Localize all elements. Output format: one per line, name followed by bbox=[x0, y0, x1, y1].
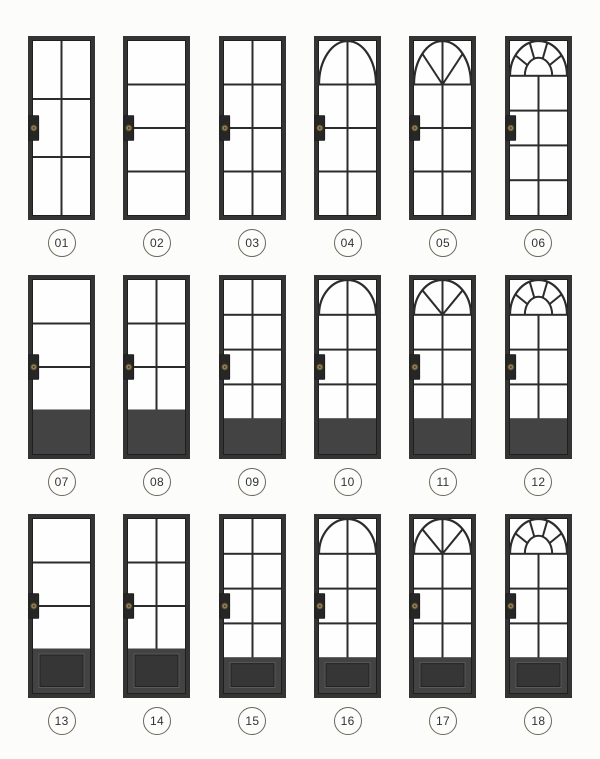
door-card-12: 12 bbox=[491, 275, 586, 496]
raised-panel bbox=[135, 655, 178, 687]
door-card-11: 11 bbox=[395, 275, 490, 496]
door-illustration-02 bbox=[123, 36, 190, 220]
door-illustration-17 bbox=[409, 514, 476, 698]
door-number-label: 15 bbox=[245, 714, 259, 728]
door-card-10: 10 bbox=[300, 275, 395, 496]
raised-panel bbox=[40, 655, 83, 687]
door-knob-center bbox=[128, 605, 130, 607]
vertical-muntin bbox=[442, 519, 444, 658]
door-card-06: 06 bbox=[491, 36, 586, 257]
kick-panel bbox=[319, 418, 376, 454]
raised-panel bbox=[326, 664, 369, 687]
door-number-label: 07 bbox=[55, 475, 69, 489]
door-illustration-14 bbox=[123, 514, 190, 698]
horizontal-muntin bbox=[128, 127, 185, 129]
door-illustration-15 bbox=[219, 514, 286, 698]
vertical-muntin bbox=[537, 315, 539, 419]
door-number-badge: 07 bbox=[48, 468, 76, 496]
door-knob-center bbox=[319, 127, 321, 129]
door-knob-center bbox=[510, 127, 512, 129]
kick-panel bbox=[510, 418, 567, 454]
door-illustration-18 bbox=[505, 514, 572, 698]
door-number-label: 16 bbox=[341, 714, 355, 728]
door-number-label: 03 bbox=[245, 236, 259, 250]
door-number-label: 14 bbox=[150, 714, 164, 728]
door-knob-center bbox=[224, 127, 226, 129]
door-number-badge: 16 bbox=[334, 707, 362, 735]
door-knob-center bbox=[128, 127, 130, 129]
raised-panel bbox=[421, 664, 464, 687]
door-card-01: 01 bbox=[14, 36, 109, 257]
vertical-muntin bbox=[251, 519, 253, 658]
door-illustration-05 bbox=[409, 36, 476, 220]
door-illustration-09 bbox=[219, 275, 286, 459]
door-number-badge: 03 bbox=[238, 229, 266, 257]
horizontal-muntin bbox=[128, 171, 185, 173]
door-illustration-08 bbox=[123, 275, 190, 459]
door-illustration-03 bbox=[219, 36, 286, 220]
horizontal-muntin bbox=[33, 605, 90, 607]
vertical-muntin bbox=[347, 519, 349, 658]
door-number-badge: 10 bbox=[334, 468, 362, 496]
kick-panel bbox=[224, 418, 281, 454]
door-illustration-04 bbox=[314, 36, 381, 220]
door-number-badge: 14 bbox=[143, 707, 171, 735]
door-card-14: 14 bbox=[109, 514, 204, 735]
vertical-muntin bbox=[156, 280, 158, 411]
door-number-badge: 06 bbox=[524, 229, 552, 257]
door-illustration-01 bbox=[28, 36, 95, 220]
door-card-02: 02 bbox=[109, 36, 204, 257]
door-illustration-06 bbox=[505, 36, 572, 220]
door-number-badge: 17 bbox=[429, 707, 457, 735]
door-number-label: 08 bbox=[150, 475, 164, 489]
kick-panel bbox=[414, 418, 471, 454]
horizontal-muntin bbox=[33, 366, 90, 368]
door-number-label: 01 bbox=[55, 236, 69, 250]
vertical-muntin bbox=[537, 554, 539, 658]
door-number-label: 09 bbox=[245, 475, 259, 489]
vertical-muntin bbox=[537, 76, 539, 215]
vertical-muntin bbox=[61, 41, 63, 215]
door-number-badge: 09 bbox=[238, 468, 266, 496]
door-knob-center bbox=[224, 605, 226, 607]
door-number-label: 11 bbox=[436, 475, 449, 489]
door-knob-center bbox=[319, 605, 321, 607]
vertical-muntin bbox=[156, 519, 158, 650]
door-number-label: 10 bbox=[341, 475, 355, 489]
door-number-badge: 11 bbox=[429, 468, 457, 496]
door-grid: 010203040506070809101112131415161718 bbox=[14, 36, 586, 735]
kick-panel bbox=[128, 410, 185, 455]
door-knob-center bbox=[510, 605, 512, 607]
door-number-badge: 08 bbox=[143, 468, 171, 496]
door-number-badge: 18 bbox=[524, 707, 552, 735]
door-number-badge: 12 bbox=[524, 468, 552, 496]
door-knob-center bbox=[414, 127, 416, 129]
door-number-badge: 13 bbox=[48, 707, 76, 735]
door-knob-center bbox=[128, 366, 130, 368]
door-knob-center bbox=[319, 366, 321, 368]
raised-panel bbox=[517, 664, 560, 687]
door-knob-center bbox=[33, 127, 35, 129]
vertical-muntin bbox=[442, 280, 444, 419]
door-illustration-11 bbox=[409, 275, 476, 459]
horizontal-muntin bbox=[33, 323, 90, 325]
door-card-13: 13 bbox=[14, 514, 109, 735]
kick-panel bbox=[33, 410, 90, 455]
horizontal-muntin bbox=[128, 84, 185, 86]
door-number-label: 13 bbox=[55, 714, 69, 728]
door-illustration-13 bbox=[28, 514, 95, 698]
door-knob-center bbox=[33, 605, 35, 607]
door-card-15: 15 bbox=[205, 514, 300, 735]
door-card-16: 16 bbox=[300, 514, 395, 735]
door-number-label: 04 bbox=[341, 236, 355, 250]
door-card-09: 09 bbox=[205, 275, 300, 496]
door-illustration-10 bbox=[314, 275, 381, 459]
door-number-badge: 04 bbox=[334, 229, 362, 257]
door-card-04: 04 bbox=[300, 36, 395, 257]
door-number-badge: 01 bbox=[48, 229, 76, 257]
raised-panel bbox=[231, 664, 274, 687]
door-illustration-07 bbox=[28, 275, 95, 459]
door-knob-center bbox=[414, 366, 416, 368]
door-catalog-page: 010203040506070809101112131415161718 bbox=[0, 0, 600, 759]
door-number-badge: 02 bbox=[143, 229, 171, 257]
door-card-07: 07 bbox=[14, 275, 109, 496]
vertical-muntin bbox=[251, 280, 253, 419]
door-number-label: 02 bbox=[150, 236, 164, 250]
door-card-03: 03 bbox=[205, 36, 300, 257]
door-card-08: 08 bbox=[109, 275, 204, 496]
door-illustration-16 bbox=[314, 514, 381, 698]
door-card-17: 17 bbox=[395, 514, 490, 735]
door-knob-center bbox=[510, 366, 512, 368]
door-number-badge: 05 bbox=[429, 229, 457, 257]
door-number-label: 18 bbox=[531, 714, 545, 728]
door-knob-center bbox=[33, 366, 35, 368]
door-number-label: 06 bbox=[531, 236, 545, 250]
door-card-18: 18 bbox=[491, 514, 586, 735]
vertical-muntin bbox=[347, 280, 349, 419]
door-number-badge: 15 bbox=[238, 707, 266, 735]
door-knob-center bbox=[224, 366, 226, 368]
vertical-muntin bbox=[251, 41, 253, 215]
door-number-label: 12 bbox=[531, 475, 545, 489]
horizontal-muntin bbox=[33, 562, 90, 564]
door-illustration-12 bbox=[505, 275, 572, 459]
door-number-label: 17 bbox=[436, 714, 450, 728]
door-knob-center bbox=[414, 605, 416, 607]
vertical-muntin bbox=[442, 41, 444, 215]
door-number-label: 05 bbox=[436, 236, 450, 250]
vertical-muntin bbox=[347, 41, 349, 215]
door-card-05: 05 bbox=[395, 36, 490, 257]
